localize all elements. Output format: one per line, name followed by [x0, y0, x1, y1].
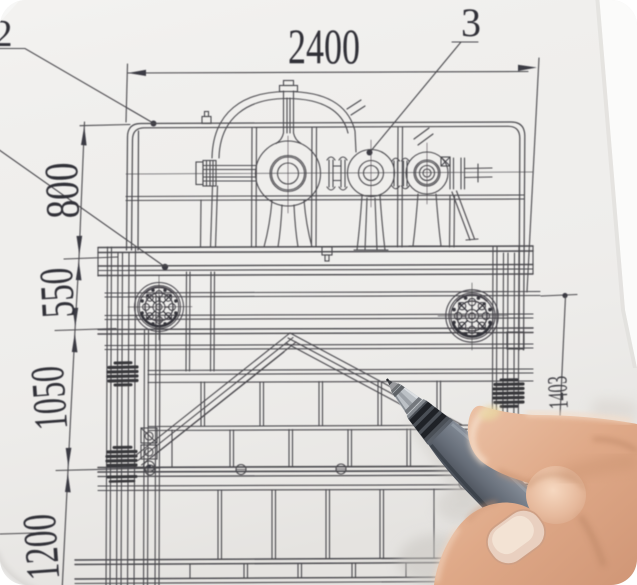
svg-text:1200: 1200 — [13, 512, 70, 582]
svg-text:3: 3 — [461, 0, 481, 45]
svg-text:1403: 1403 — [542, 375, 575, 410]
svg-text:1050: 1050 — [21, 364, 78, 432]
svg-text:550: 550 — [30, 266, 86, 319]
svg-text:2400: 2400 — [288, 18, 360, 74]
svg-text:800: 800 — [35, 162, 90, 220]
